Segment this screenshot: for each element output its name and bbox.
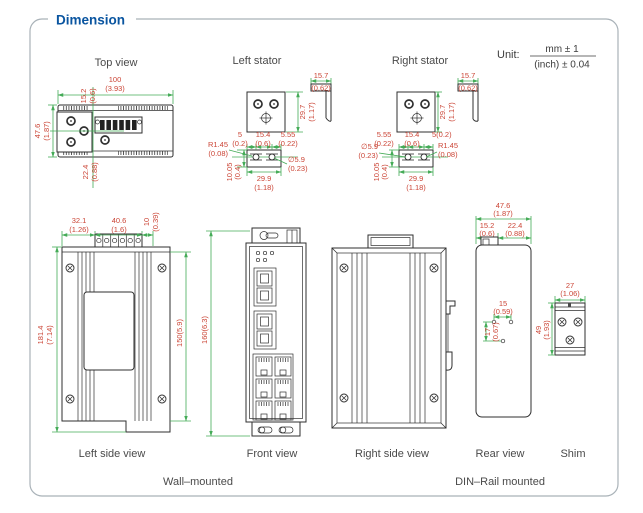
dim-top-width-in: (3.93) [105, 84, 125, 93]
dimension-drawing: Dimension Unit: mm ± 1 (inch) ± 0.04 Top… [0, 0, 643, 513]
corner-screw [340, 394, 348, 402]
dim-radius-mm: R1.45 [208, 140, 228, 149]
corner-screw [66, 395, 74, 403]
dim-flange-mm: 15.7 [314, 71, 329, 80]
left-stator-label: Left stator [233, 55, 282, 67]
dim-top-offset-in: (0.6) [88, 88, 97, 104]
dim-inner-height: 150(5.9) [175, 319, 184, 347]
dim-dia-in: (0.23) [358, 151, 378, 160]
dim-height-in: (7.14) [45, 325, 54, 345]
right-side-body [332, 248, 446, 428]
dim-base-w-in: (1.18) [254, 183, 274, 192]
rear-view-label: Rear view [476, 448, 525, 460]
dim-edge1-mm: 5 [238, 130, 242, 139]
dim-top-width-mm: 100 [109, 75, 122, 84]
dim-edge2-mm: 5.55 [377, 130, 392, 139]
dim-hole-v-in: (0.67) [491, 322, 500, 342]
stator-base [399, 150, 433, 167]
dim-plate-h-mm: 29.7 [438, 105, 447, 120]
page-title: Dimension [56, 13, 125, 28]
dim-pitch-in: (0.6) [255, 139, 271, 148]
corner-screw [158, 264, 166, 272]
dim-d3-in: (0.39) [151, 212, 160, 232]
unit-inch: (inch) ± 0.04 [534, 60, 590, 71]
dim-d2-mm: 40.6 [112, 216, 127, 225]
dim-top-bottom-in: (0.88) [90, 162, 99, 182]
dim-d2-in: (1.6) [111, 225, 127, 234]
shim-screw [566, 336, 574, 344]
fin-band [118, 151, 168, 155]
dim-plate-h-mm: 29.7 [298, 105, 307, 120]
screw-hole [67, 138, 75, 146]
corner-screw [340, 264, 348, 272]
dim-edge1: 5(0.2) [432, 130, 452, 139]
wall-mounted-caption: Wall–mounted [163, 476, 233, 488]
dim-pitch-mm: 15.4 [256, 130, 271, 139]
right-side-label: Right side view [355, 448, 429, 460]
top-view-label: Top view [95, 57, 138, 69]
corner-screw [66, 264, 74, 272]
dim-edge2-mm: 5.55 [281, 130, 296, 139]
dim-dia-in: (0.23) [288, 164, 308, 173]
left-side-label: Left side view [79, 448, 146, 460]
fin-band [118, 106, 168, 110]
corner-screw [430, 264, 438, 272]
dim-shim-w-in: (1.06) [560, 289, 580, 298]
dim-edge1-in: (0.2) [232, 139, 248, 148]
dim-hole-span-in: (0.59) [493, 307, 513, 316]
dim-edge2-in: (0.22) [278, 139, 298, 148]
terminal-block [368, 235, 413, 248]
din-rail-mounted-caption: DIN–Rail mounted [455, 476, 545, 488]
dim-flange-in: (0.62) [458, 84, 478, 93]
ground-screw [101, 136, 109, 144]
dim-pitch-mm: 15.4 [405, 130, 420, 139]
shim-label: Shim [560, 448, 585, 460]
shim-screw [558, 318, 566, 326]
screw-hole [67, 117, 75, 125]
stator-plate [397, 92, 435, 132]
dim-base-w-mm: 29.9 [409, 174, 424, 183]
dim-top-height-mm: 47.6 [33, 124, 42, 139]
unit-mm: mm ± 1 [545, 44, 579, 55]
dim-base-w-mm: 29.9 [257, 174, 272, 183]
right-stator-label: Right stator [392, 55, 449, 67]
dim-d3-mm: 10 [142, 218, 151, 226]
dim-radius-mm: R1.45 [438, 141, 458, 150]
corner-screw [430, 394, 438, 402]
dim-d1-mm: 32.1 [72, 216, 87, 225]
din-slot-tab [481, 237, 498, 245]
unit-label: Unit: [497, 49, 520, 61]
dim-base-h-in: (0.4) [233, 164, 242, 180]
side-panel [84, 292, 134, 370]
dim-dia-mm: ∅5.9 [288, 155, 305, 164]
front-view-label: Front view [247, 448, 298, 460]
dim-plate-h-in: (1.17) [447, 102, 456, 122]
dim-rear-w-in: (1.87) [493, 209, 513, 218]
dim-radius-in: (0.08) [208, 149, 228, 158]
dim-top-offset-mm: 15.2 [79, 89, 88, 104]
dim-plate-h-in: (1.17) [307, 102, 316, 122]
dim-dia-mm: ∅5.9 [361, 142, 378, 151]
dim-base-h-in: (0.4) [380, 164, 389, 180]
dim-shim-h-in: (1.93) [542, 320, 551, 340]
dim-base-w-in: (1.18) [406, 183, 426, 192]
dim-rear-w2-in: (0.88) [505, 229, 525, 238]
dim-flange-in: (0.62) [311, 84, 331, 93]
dim-height-mm: 181.4 [36, 326, 45, 345]
dim-pitch-in: (0.6) [404, 139, 420, 148]
fin-band [63, 106, 88, 110]
dim-front-height: 160(6.3) [200, 316, 209, 344]
dim-top-bottom-mm: 22.4 [81, 165, 90, 180]
dim-flange-mm: 15.7 [461, 71, 476, 80]
dim-top-height-in: (1.87) [42, 121, 51, 141]
dimension-page: Dimension Unit: mm ± 1 (inch) ± 0.04 Top… [0, 0, 643, 513]
corner-screw [158, 395, 166, 403]
dim-d1-in: (1.26) [69, 225, 89, 234]
right-side-view: Right side view [332, 235, 455, 460]
shim-screw [574, 318, 582, 326]
dim-radius-in: (0.08) [438, 150, 458, 159]
